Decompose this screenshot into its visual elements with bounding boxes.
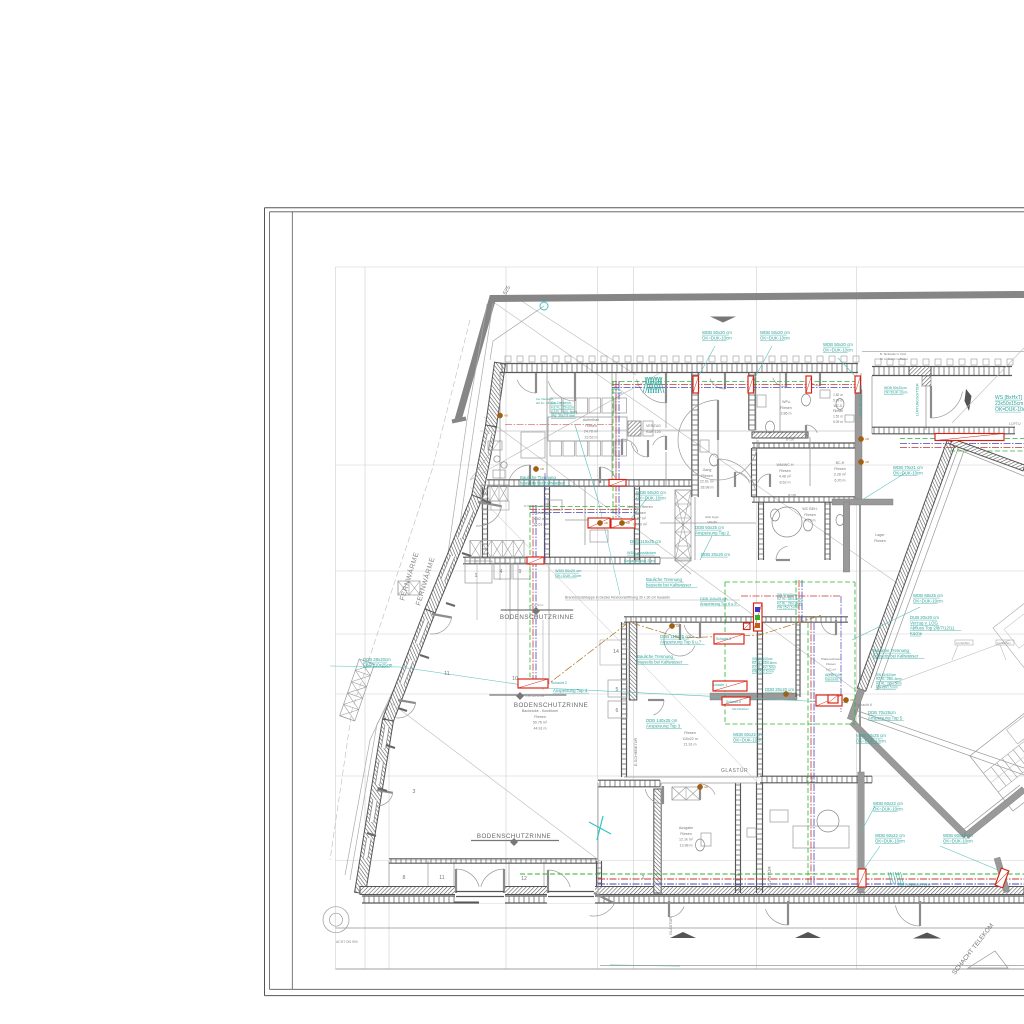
svg-text:21.91 m: 21.91 m — [684, 743, 697, 747]
svg-text:OK=DUK-10cm: OK=DUK-10cm — [875, 838, 905, 843]
svg-text:E-SCHIEBETÜR: E-SCHIEBETÜR — [634, 737, 638, 766]
svg-text:DDB 140x25 cm: DDB 140x25 cm — [646, 718, 678, 723]
svg-text:DUB 20x20 cm: DUB 20x20 cm — [910, 615, 939, 620]
svg-text:Unklabe Herren: Unklabe Herren — [627, 505, 652, 509]
svg-text:SW 20x20um: SW 20x20um — [732, 707, 749, 711]
svg-text:AB: AB — [865, 437, 869, 441]
svg-text:Schacht 2: Schacht 2 — [551, 681, 567, 685]
svg-text:WDB 50x20 cm: WDB 50x20 cm — [760, 330, 790, 335]
svg-text:Schacht 6: Schacht 6 — [856, 703, 872, 707]
svg-text:PW 25x1.5 mm: PW 25x1.5 mm — [777, 606, 799, 610]
svg-text:50.76 m²: 50.76 m² — [533, 721, 548, 725]
svg-text:OK=DUK-10cm: OK=DUK-10cm — [856, 738, 886, 743]
svg-text:5.09 m: 5.09 m — [833, 420, 843, 424]
svg-text:WDB 50x20 cm: WDB 50x20 cm — [636, 490, 666, 495]
svg-text:DDB 28x20cm: DDB 28x20cm — [363, 657, 391, 662]
svg-text:9: 9 — [519, 569, 522, 575]
svg-text:BODENSCHUTZRINNE: BODENSCHUTZRINNE — [514, 702, 588, 709]
svg-text:AB: AB — [704, 785, 708, 789]
svg-text:Anspeisung Top 6 u.7: Anspeisung Top 6 u.7 — [660, 639, 702, 644]
svg-text:Ausgabe: Ausgabe — [679, 826, 693, 830]
svg-text:bauseits bei Kaltwasser: bauseits bei Kaltwasser — [873, 653, 919, 658]
svg-text:Fliesen: Fliesen — [874, 539, 886, 543]
svg-text:Fliesen: Fliesen — [826, 662, 836, 666]
svg-text:Schacht 3: Schacht 3 — [716, 637, 731, 641]
svg-text:2.28 m²: 2.28 m² — [834, 473, 847, 477]
svg-text:11: 11 — [439, 875, 444, 881]
svg-text:BODENSCHUTZRINNE: BODENSCHUTZRINNE — [500, 614, 574, 621]
svg-text:AB: AB — [865, 460, 869, 464]
svg-text:DDB 70x25cm: DDB 70x25cm — [868, 710, 896, 715]
svg-text:OK=DUK-10cm: OK=DUK-10cm — [893, 470, 923, 475]
svg-text:Anspeisung Top 5: Anspeisung Top 5 — [868, 715, 903, 720]
svg-text:Fliesen: Fliesen — [684, 731, 696, 735]
svg-text:Fliesen: Fliesen — [804, 513, 816, 517]
svg-text:BC-H: BC-H — [836, 461, 845, 465]
svg-text:Gang: Gang — [703, 468, 712, 472]
svg-text:Fliesen: Fliesen — [780, 406, 792, 410]
svg-text:Bauliche Trennung: Bauliche Trennung — [637, 654, 673, 659]
svg-text:OK=DUK-10cm: OK=DUK-10cm — [913, 598, 943, 603]
svg-text:WDB 60x22 cm: WDB 60x22 cm — [943, 833, 973, 838]
svg-text:AB: AB — [850, 698, 854, 702]
svg-text:8: 8 — [403, 875, 406, 881]
svg-text:2: 2 — [642, 875, 645, 881]
svg-text:3.86 m: 3.86 m — [781, 412, 792, 416]
svg-text:Fliesen: Fliesen — [534, 511, 546, 515]
svg-text:Fliesen: Fliesen — [834, 467, 846, 471]
svg-text:WDB 70x21 cm: WDB 70x21 cm — [893, 465, 923, 470]
svg-text:B. Tankstelle N. 6x10: B. Tankstelle N. 6x10 — [880, 352, 907, 356]
svg-text:LG-Sto/5cm: LG-Sto/5cm — [956, 641, 970, 645]
svg-text:DDB 20x20 cm: DDB 20x20 cm — [765, 687, 794, 692]
svg-text:RAR 125: RAR 125 — [646, 430, 661, 434]
svg-text:AB: AB — [790, 692, 794, 696]
svg-text:Anspeisung Top 8 u.9: Anspeisung Top 8 u.9 — [700, 602, 736, 606]
svg-text:Bauliche Trennung: Bauliche Trennung — [520, 475, 556, 480]
svg-text:WC-D: WC-D — [834, 404, 843, 408]
svg-text:10: 10 — [512, 676, 518, 682]
svg-text:DDB 20x20 cm: DDB 20x20 cm — [701, 552, 730, 557]
svg-text:4: 4 — [500, 569, 503, 575]
svg-text:50 m² Grayb im Boden: 50 m² Grayb im Boden — [880, 357, 909, 361]
svg-text:Bauliche Trennung: Bauliche Trennung — [873, 648, 909, 653]
svg-text:OK=DUK-10cm: OK=DUK-10cm — [823, 347, 853, 352]
svg-text:14: 14 — [613, 649, 619, 655]
svg-text:LÜFTUNGSGITTER: LÜFTUNGSGITTER — [916, 383, 920, 416]
svg-text:Ø 105: Ø 105 — [788, 493, 797, 497]
svg-text:23.52 m: 23.52 m — [585, 435, 598, 439]
svg-text:9.82 m²: 9.82 m² — [534, 517, 547, 521]
svg-text:LÜFTU: LÜFTU — [1009, 422, 1021, 426]
svg-text:Fliesen: Fliesen — [779, 469, 791, 473]
svg-text:5: 5 — [616, 687, 619, 693]
svg-text:Abst Hygn: Abst Hygn — [705, 515, 719, 519]
svg-text:13.98 m: 13.98 m — [680, 843, 693, 847]
svg-text:12.00 m²: 12.00 m² — [633, 522, 648, 526]
svg-text:Fliesen: Fliesen — [634, 511, 646, 515]
svg-text:OK=DUK-10cm: OK=DUK-10cm — [702, 335, 732, 340]
svg-text:IPA: 35x2.5 mm: IPA: 35x2.5 mm — [551, 414, 575, 418]
svg-text:Anspeisung Top 3: Anspeisung Top 3 — [646, 723, 681, 728]
svg-text:3: 3 — [413, 789, 416, 795]
svg-text:WDB 60x22 cm: WDB 60x22 cm — [873, 801, 903, 806]
svg-text:1: 1 — [475, 573, 478, 579]
svg-text:GLASTÜR: GLASTÜR — [766, 866, 772, 888]
svg-text:LG-Sto/5cm: LG-Sto/5cm — [997, 641, 1011, 645]
svg-text:bauseits: bauseits — [825, 678, 839, 682]
svg-text:WDB 50x20 cm: WDB 50x20 cm — [702, 330, 732, 335]
svg-text:bauseits bei Kaltwasser: bauseits bei Kaltwasser — [637, 659, 683, 664]
svg-text:Fliesen: Fliesen — [833, 409, 844, 413]
svg-text:AB: AB — [540, 467, 544, 471]
svg-text:7.87 m²: 7.87 m² — [634, 517, 647, 521]
svg-text:bauseits bei Kaltwasser: bauseits bei Kaltwasser — [646, 582, 692, 587]
svg-text:KW 35x2.5 mm: KW 35x2.5 mm — [752, 670, 774, 674]
svg-text:WDB 50x20 cm: WDB 50x20 cm — [823, 342, 853, 347]
svg-text:KW 28x1.5 mm: KW 28x1.5 mm — [876, 686, 898, 690]
svg-text:Schacht 8: Schacht 8 — [726, 700, 741, 704]
svg-text:Fliesen: Fliesen — [534, 715, 546, 719]
svg-text:HZ FL: 25x2cm: HZ FL: 25x2cm — [551, 405, 574, 409]
svg-text:24.78 m²: 24.78 m² — [584, 430, 599, 434]
svg-text:Plattenschaum: Plattenschaum — [821, 657, 841, 661]
svg-text:WDB 68x25 cm: WDB 68x25 cm — [913, 593, 943, 598]
svg-text:DDB 50x25 cm: DDB 50x25 cm — [695, 525, 724, 530]
svg-text:11: 11 — [444, 671, 449, 677]
svg-text:DDB 110x25 cm: DDB 110x25 cm — [630, 539, 661, 544]
svg-text:ACHT DN 900: ACHT DN 900 — [336, 940, 358, 944]
svg-text:HZ FL: 25x2cm: HZ FL: 25x2cm — [536, 401, 557, 405]
svg-text:OK=DUK-10cm: OK=DUK-10cm — [555, 574, 581, 578]
svg-text:OK=DUK-10cm: OK=DUK-10cm — [760, 335, 790, 340]
svg-text:WDB 50x20 cm: WDB 50x20 cm — [555, 569, 581, 573]
svg-text:Bauliche Trennung: Bauliche Trennung — [646, 577, 682, 582]
svg-text:Anspeisung Top 2: Anspeisung Top 2 — [695, 530, 730, 535]
svg-text:KZ/FL: 28/1.5mm: KZ/FL: 28/1.5mm — [551, 410, 577, 414]
svg-text:Küche: Küche — [910, 631, 923, 636]
svg-text:5.09 m: 5.09 m — [833, 398, 843, 402]
svg-text:Verzug v. LOG: Verzug v. LOG — [910, 620, 939, 625]
svg-text:4.48 m²: 4.48 m² — [779, 475, 792, 479]
svg-text:Backstube - Konditorei: Backstube - Konditorei — [522, 709, 558, 713]
svg-text:WC BEH.: WC BEH. — [802, 507, 817, 511]
svg-text:Schacht 1: Schacht 1 — [712, 683, 727, 687]
svg-text:GLASTÜR: GLASTÜR — [669, 917, 673, 935]
svg-text:1.82 m: 1.82 m — [833, 393, 843, 397]
svg-text:28.98 m: 28.98 m — [701, 485, 714, 489]
svg-text:OK=DUK-10cm: OK=DUK-10cm — [943, 838, 973, 843]
svg-text:I DB 110.50 um: I DB 110.50 um — [525, 694, 545, 698]
svg-text:Fliesen: Fliesen — [701, 474, 713, 478]
svg-text:LÜFTUNGSGITTER: LÜFTUNGSGITTER — [859, 385, 863, 418]
svg-text:U-Verteiler unterputz: U-Verteiler unterputz — [524, 504, 552, 508]
svg-text:Fliesen: Fliesen — [680, 832, 692, 836]
svg-text:16.51 m: 16.51 m — [534, 523, 547, 527]
svg-text:Lager: Lager — [875, 533, 885, 537]
svg-text:Mitte Rinne: Mitte Rinne — [530, 603, 544, 607]
svg-text:Ø 100: Ø 100 — [786, 438, 795, 442]
svg-text:Abfluss Top 2/8/7/12/11: Abfluss Top 2/8/7/12/11 — [910, 626, 955, 631]
svg-text:OK=DUK-10cm: OK=DUK-10cm — [636, 495, 666, 500]
svg-text:VERZUG: VERZUG — [646, 424, 661, 428]
svg-text:12: 12 — [521, 876, 527, 882]
svg-text:GLASTÜR: GLASTÜR — [721, 767, 748, 774]
svg-text:44.91 m: 44.91 m — [534, 726, 547, 730]
svg-text:DDB 110x25 cm: DDB 110x25 cm — [660, 634, 691, 639]
svg-text:OK=DUK-10cm: OK=DUK-10cm — [884, 390, 908, 394]
svg-text:Fliesen: Fliesen — [585, 424, 597, 428]
svg-text:110x22 m: 110x22 m — [682, 737, 698, 741]
svg-text:AB: AB — [676, 624, 680, 628]
svg-text:AB: AB — [626, 521, 630, 525]
svg-text:AB: AB — [504, 414, 508, 418]
svg-text:WDB ausstäcken: WDB ausstäcken — [627, 551, 656, 555]
svg-text:WM/WC H: WM/WC H — [777, 463, 794, 467]
svg-text:140x90: 140x90 — [707, 520, 717, 524]
svg-text:6.20 m: 6.20 m — [835, 478, 846, 482]
svg-text:WDB 60x22 cm: WDB 60x22 cm — [733, 732, 763, 737]
svg-text:AB: AB — [604, 521, 608, 525]
svg-text:8.62 m: 8.62 m — [780, 480, 791, 484]
svg-text:WDB 50x20cm: WDB 50x20cm — [884, 386, 907, 390]
svg-text:WPu: WPu — [782, 400, 790, 404]
svg-text:WDB 93x25 cm: WDB 93x25 cm — [856, 733, 886, 738]
svg-text:4.79 m: 4.79 m — [805, 519, 816, 523]
svg-text:22.61 m²: 22.61 m² — [700, 480, 715, 484]
svg-text:0.01 m²: 0.01 m² — [826, 667, 836, 671]
svg-text:AB DN100: AB DN100 — [825, 673, 842, 677]
svg-text:6: 6 — [616, 708, 619, 714]
svg-text:Aufenthalt: Aufenthalt — [583, 418, 599, 422]
svg-text:DN 100: DN 100 — [612, 391, 623, 395]
svg-text:Brandschutzklappe in Deckel Re: Brandschutzklappe in Deckel Revisionsöff… — [565, 596, 670, 600]
svg-text:LÜFTUNGSGITTER: LÜFTUNGSGITTER — [898, 883, 931, 887]
svg-text:OK=DUK-10cm: OK=DUK-10cm — [733, 737, 763, 742]
svg-text:bauseits bei Kaltwasser: bauseits bei Kaltwasser — [520, 480, 566, 485]
svg-text:DDB 110x25 cm: DDB 110x25 cm — [700, 597, 727, 601]
svg-text:Anspeisung Top 4: Anspeisung Top 4 — [553, 688, 588, 693]
svg-text:OK=DUK-10cm: OK=DUK-10cm — [873, 806, 903, 811]
svg-text:12.1k m²: 12.1k m² — [679, 838, 694, 842]
svg-text:Gesamtdicke 20m: Gesamtdicke 20m — [624, 559, 655, 563]
svg-text:1.52 m: 1.52 m — [833, 415, 843, 419]
svg-text:WDB 60x22 cm: WDB 60x22 cm — [875, 833, 905, 838]
